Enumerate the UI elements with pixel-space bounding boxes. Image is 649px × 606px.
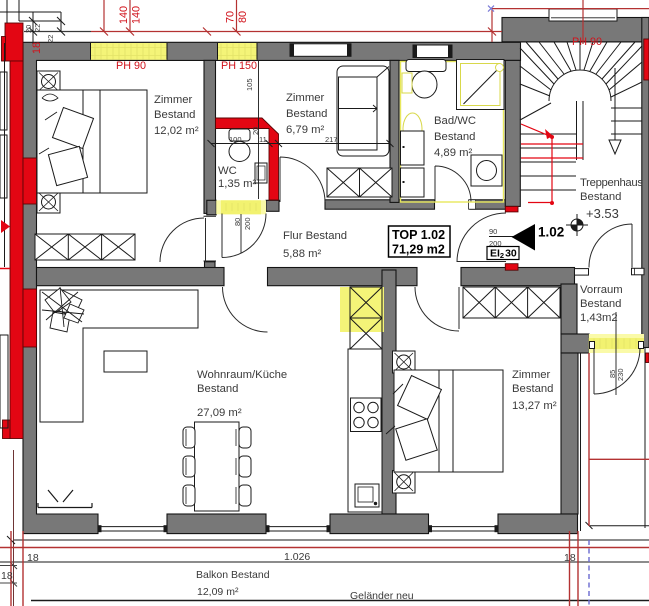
svg-text:22: 22 [33, 24, 42, 32]
svg-text:18: 18 [27, 552, 39, 564]
svg-text:90: 90 [489, 227, 497, 236]
svg-text:1.02: 1.02 [538, 225, 564, 240]
svg-text:PH 90: PH 90 [116, 60, 146, 72]
svg-text:100: 100 [229, 135, 242, 144]
svg-text:12,02 m²: 12,02 m² [154, 125, 199, 137]
svg-text:18: 18 [564, 552, 576, 564]
svg-text:Geländer neu: Geländer neu [350, 590, 414, 602]
svg-text:18: 18 [31, 42, 43, 54]
svg-text:Zimmer: Zimmer [286, 92, 325, 104]
svg-text:Bestand: Bestand [580, 298, 621, 310]
svg-text:Bestand: Bestand [512, 383, 553, 395]
svg-text:20: 20 [251, 127, 260, 135]
svg-text:13,27 m²: 13,27 m² [512, 400, 557, 412]
svg-text:80: 80 [237, 11, 249, 23]
svg-text:Bestand: Bestand [286, 108, 327, 120]
svg-text:Bad/WC: Bad/WC [434, 115, 476, 127]
svg-text:PH 90: PH 90 [572, 36, 602, 48]
svg-text:1,35 m²: 1,35 m² [218, 178, 257, 190]
svg-text:230: 230 [616, 368, 625, 381]
svg-text:18: 18 [1, 570, 13, 582]
svg-text:Bestand: Bestand [580, 191, 621, 203]
svg-text:80: 80 [233, 218, 242, 226]
svg-text:140: 140 [118, 6, 130, 24]
svg-text:+3.53: +3.53 [586, 206, 619, 221]
svg-text:71,29 m2: 71,29 m2 [392, 243, 445, 257]
svg-text:Vorraum: Vorraum [580, 284, 623, 296]
svg-text:200: 200 [243, 217, 252, 230]
svg-text:5,88 m²: 5,88 m² [283, 248, 322, 260]
svg-text:Zimmer: Zimmer [154, 94, 193, 106]
svg-text:22: 22 [46, 35, 55, 43]
svg-text:1,43m2: 1,43m2 [580, 312, 618, 324]
svg-text:TOP 1.02: TOP 1.02 [392, 228, 445, 242]
svg-text:6,79 m²: 6,79 m² [286, 124, 325, 136]
svg-text:4,89 m²: 4,89 m² [434, 147, 473, 159]
svg-text:1.026: 1.026 [284, 551, 310, 563]
svg-text:200: 200 [489, 239, 502, 248]
svg-text:Balkon Bestand: Balkon Bestand [196, 569, 270, 581]
svg-text:Bestand: Bestand [197, 383, 238, 395]
svg-text:Treppenhaus: Treppenhaus [580, 177, 643, 189]
svg-text:Bestand: Bestand [154, 109, 195, 121]
svg-text:20: 20 [24, 25, 33, 33]
svg-text:PH 150: PH 150 [221, 60, 257, 72]
svg-text:Flur Bestand: Flur Bestand [283, 230, 347, 242]
svg-text:Zimmer: Zimmer [512, 369, 551, 381]
svg-text:70: 70 [225, 11, 237, 23]
svg-text:12,09 m²: 12,09 m² [197, 586, 239, 598]
svg-text:105: 105 [245, 78, 254, 91]
svg-text:WC: WC [218, 165, 237, 177]
svg-text:Wohnraum/Küche: Wohnraum/Küche [197, 369, 287, 381]
svg-text:11: 11 [259, 135, 267, 144]
svg-text:27,09 m²: 27,09 m² [197, 407, 242, 419]
svg-text:Bestand: Bestand [434, 131, 475, 143]
svg-text:217: 217 [325, 135, 338, 144]
svg-text:140: 140 [131, 6, 143, 24]
